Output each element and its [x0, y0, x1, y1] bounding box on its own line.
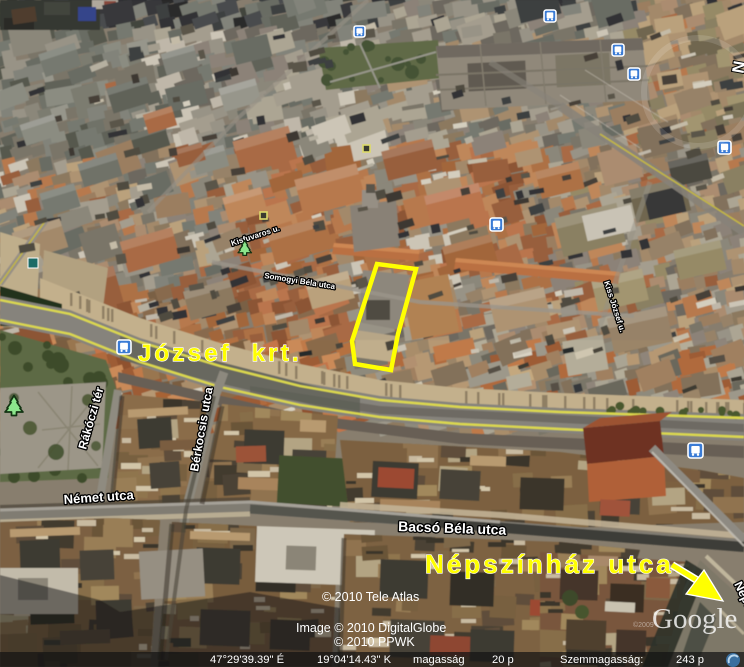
svg-text:243 p: 243 p — [676, 654, 704, 666]
svg-text:Népszínház utca: Népszínház utca — [425, 549, 674, 579]
svg-text:19°04'14.43" K: 19°04'14.43" K — [317, 654, 392, 666]
svg-text:Google: Google — [652, 603, 737, 635]
svg-text:magasság: magasság — [413, 654, 465, 666]
svg-text:Szemmagasság:: Szemmagasság: — [560, 654, 643, 666]
svg-text:©2009: ©2009 — [633, 621, 654, 629]
svg-text:© 2010 Tele Atlas: © 2010 Tele Atlas — [322, 590, 419, 604]
svg-text:© 2010 PPWK: © 2010 PPWK — [334, 635, 415, 649]
svg-text:47°29'39.39" É: 47°29'39.39" É — [210, 653, 284, 666]
svg-text:Image © 2010 DigitalGlobe: Image © 2010 DigitalGlobe — [296, 621, 446, 635]
svg-text:József krt.: József krt. — [138, 340, 302, 367]
svg-text:20 p: 20 p — [492, 654, 514, 666]
